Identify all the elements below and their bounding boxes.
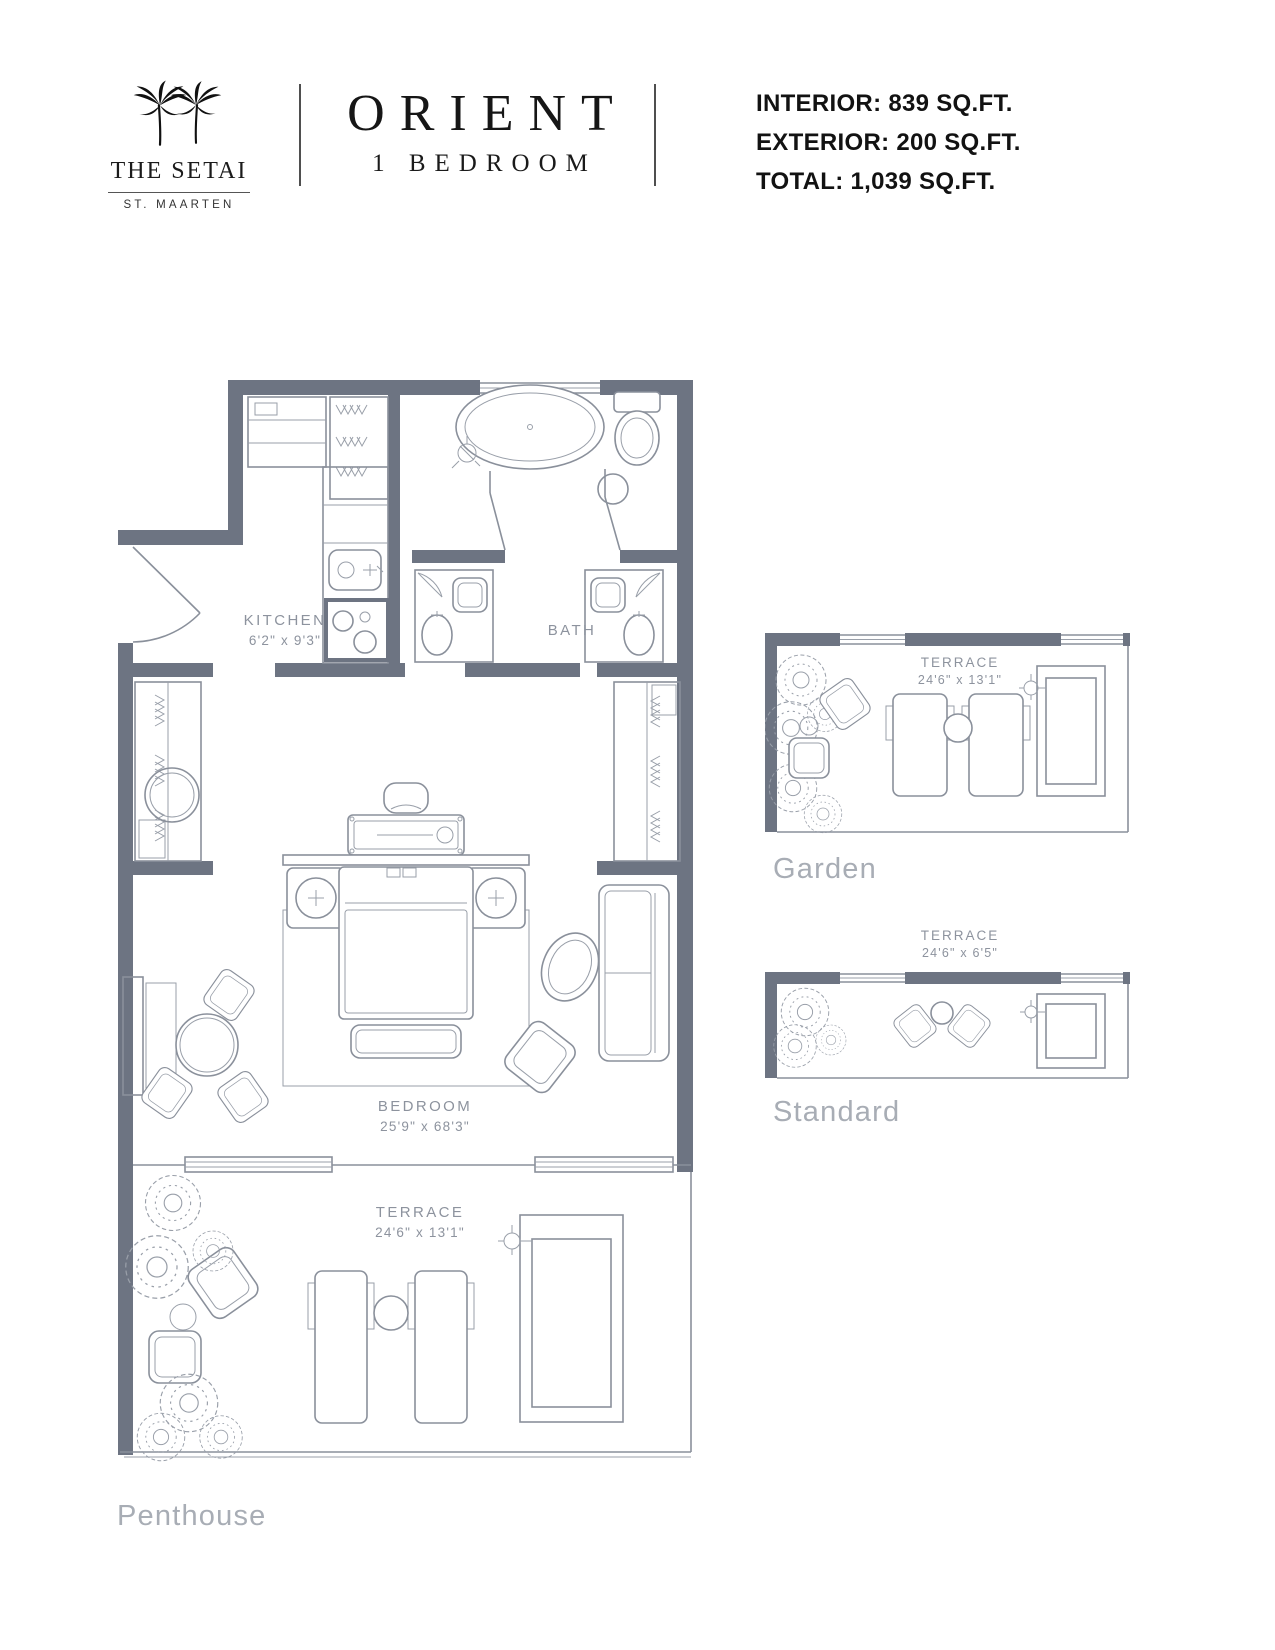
caption-penthouse: Penthouse [117,1500,266,1533]
kitchen-label: KITCHEN 6'2" x 9'3" [244,612,327,648]
sun-lounger [308,1271,374,1423]
kitchen-sink [329,550,383,590]
bath-stool [598,474,628,504]
brand-name: THE SETAI [108,158,250,193]
vanity-left [415,570,493,662]
pantry-closet [248,397,326,467]
tv [384,783,428,813]
outdoor-shower [1019,674,1046,700]
shelf-unit [330,397,388,499]
kitchen-label-name: KITCHEN [244,612,327,629]
bathtub [452,385,604,469]
entry-door [133,547,200,642]
caption-standard: Standard [773,1096,900,1129]
terrace-side-table [800,717,818,735]
sun-loungers [886,694,1030,796]
outdoor-shower [498,1225,532,1255]
nightstand-left [287,868,345,928]
terrace-chair [184,1244,262,1322]
plants [126,1176,243,1461]
foot-bench [351,1025,461,1058]
palm-trees-icon [110,72,250,164]
terrace-standard-dims: 24'6" x 6'5" [921,946,1000,960]
bedroom-label-name: BEDROOM [378,1098,472,1115]
kitchen-counter [323,467,388,663]
header-divider-left [299,84,301,186]
terrace-label-penthouse: TERRACE 24'6" x 13'1" [375,1204,465,1240]
stat-interior: INTERIOR: 839 SQ.FT. [756,84,1021,123]
terrace-garden-name: TERRACE [918,655,1002,670]
ottoman [149,1331,201,1383]
kitchen-label-dims: 6'2" x 9'3" [244,633,327,648]
terrace-standard-name: TERRACE [921,928,1000,943]
brand-location: ST. MAARTEN [108,199,250,211]
bed [283,855,529,1058]
terrace-penthouse-dims: 24'6" x 13'1" [375,1225,465,1240]
bath-label-name: BATH [548,622,597,639]
accent-chair [501,1018,579,1097]
closet-left [135,682,201,861]
stat-exterior: EXTERIOR: 200 SQ.FT. [756,123,1021,162]
nightstand-right [467,868,525,928]
brand-block: THE SETAI ST. MAARTEN [108,158,250,211]
terrace-chair [817,676,873,733]
walls [765,972,1130,1078]
lounger-side-table [374,1296,408,1330]
tv-console [348,783,464,855]
ottoman [789,738,829,778]
toilet [614,392,660,465]
terrace-side-table [170,1304,196,1330]
sofa [599,885,669,1061]
bedroom-label: BEDROOM 25'9" x 68'3" [378,1098,472,1134]
penthouse-floorplan [115,365,700,1465]
dining-set [139,967,271,1126]
floorplan-page: THE SETAI ST. MAARTEN ORIENT 1 BEDROOM I… [0,0,1275,1650]
terrace-penthouse-name: TERRACE [375,1204,465,1221]
terrace-doors [133,1157,691,1172]
sun-lounger [408,1271,474,1423]
stat-total: TOTAL: 1,039 SQ.FT. [756,162,1021,201]
terrace-label-garden: TERRACE 24'6" x 13'1" [918,655,1002,687]
closet-right [614,682,680,861]
standard-floorplan [765,968,1130,1083]
plunge-pool [1019,666,1105,796]
caption-garden: Garden [773,853,877,886]
vanity-right [585,570,663,662]
page-subtitle: 1 BEDROOM [310,150,650,178]
plants [774,988,846,1067]
page-title: ORIENT [310,84,650,143]
terrace-chairs [892,1002,993,1050]
bedroom-label-dims: 25'9" x 68'3" [378,1119,472,1134]
round-mirror [145,768,199,822]
terrace-garden-dims: 24'6" x 13'1" [918,673,1002,687]
cooktop [326,600,388,660]
header-divider-right [654,84,656,186]
oval-chair [531,924,609,1010]
bath-label: BATH [548,622,597,639]
outdoor-shower [1020,1000,1045,1023]
area-stats: INTERIOR: 839 SQ.FT. EXTERIOR: 200 SQ.FT… [756,84,1021,201]
terrace-label-standard: TERRACE 24'6" x 6'5" [921,928,1000,960]
plunge-pool [1020,994,1105,1068]
plunge-pool [498,1215,623,1422]
